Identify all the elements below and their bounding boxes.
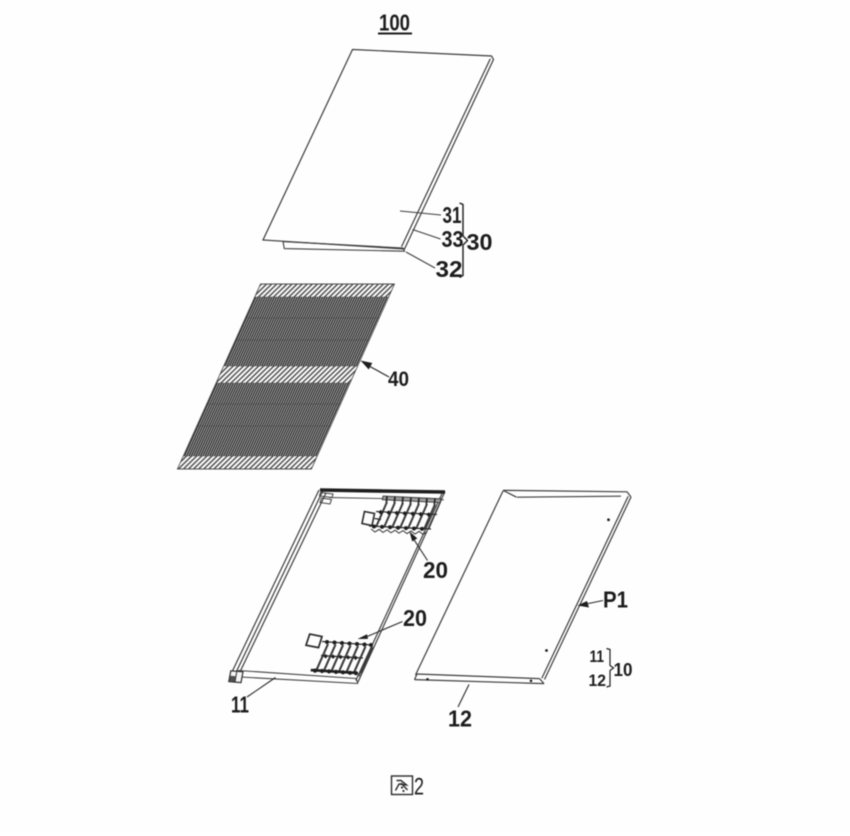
svg-text:40: 40 <box>388 368 409 391</box>
svg-text:100: 100 <box>379 10 410 36</box>
svg-text:12: 12 <box>589 672 607 690</box>
svg-text:20: 20 <box>403 605 427 631</box>
svg-text:31: 31 <box>443 202 462 228</box>
svg-text:10: 10 <box>614 660 633 680</box>
svg-text:P1: P1 <box>603 587 628 613</box>
svg-text:11: 11 <box>231 692 249 718</box>
svg-text:12: 12 <box>448 706 472 732</box>
svg-text:33: 33 <box>442 226 464 252</box>
svg-text:20: 20 <box>423 557 448 583</box>
svg-text:30: 30 <box>467 229 493 255</box>
svg-text:32: 32 <box>436 256 463 282</box>
svg-text:11: 11 <box>590 648 605 666</box>
svg-text:2: 2 <box>414 774 424 801</box>
